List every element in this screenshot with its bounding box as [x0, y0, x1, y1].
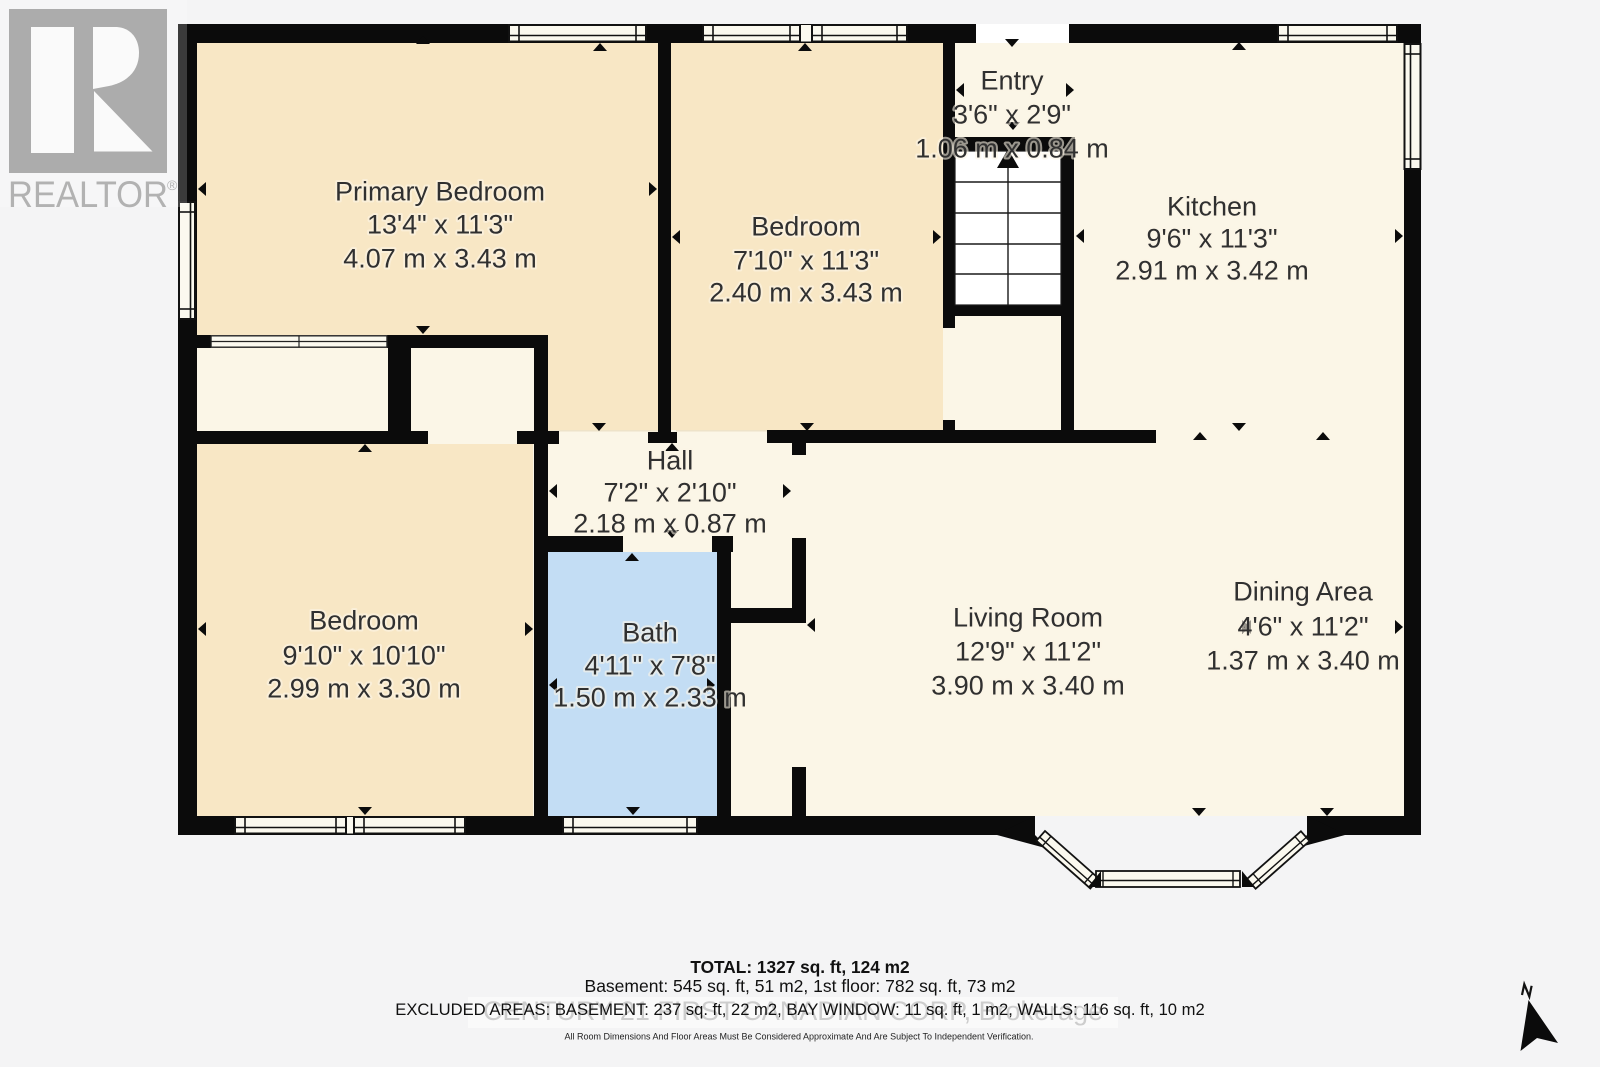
svg-text:7'10" x 11'3": 7'10" x 11'3" — [733, 245, 879, 275]
svg-text:Hall: Hall — [647, 445, 694, 475]
svg-text:Bath: Bath — [622, 618, 678, 648]
svg-text:13'4" x 11'3": 13'4" x 11'3" — [367, 209, 513, 239]
svg-text:4'11" x 7'8": 4'11" x 7'8" — [584, 651, 715, 681]
svg-text:Basement: 545 sq. ft, 51 m2, 1: Basement: 545 sq. ft, 51 m2, 1st floor: … — [585, 976, 1016, 996]
svg-text:Living Room: Living Room — [953, 603, 1103, 633]
svg-text:4'6" x 11'2": 4'6" x 11'2" — [1237, 612, 1368, 642]
svg-text:Dining Area: Dining Area — [1233, 577, 1374, 607]
svg-text:9'6" x 11'3": 9'6" x 11'3" — [1146, 223, 1277, 253]
svg-text:2.91 m x 3.42 m: 2.91 m x 3.42 m — [1115, 255, 1309, 285]
svg-text:®: ® — [167, 177, 178, 193]
svg-text:1.37 m x 3.40 m: 1.37 m x 3.40 m — [1206, 646, 1400, 676]
svg-text:Primary Bedroom: Primary Bedroom — [335, 176, 545, 206]
svg-text:TOTAL: 1327 sq. ft, 124 m2: TOTAL: 1327 sq. ft, 124 m2 — [690, 957, 909, 977]
svg-text:REALTOR: REALTOR — [8, 174, 168, 215]
svg-text:4.07 m x 3.43 m: 4.07 m x 3.43 m — [343, 243, 537, 273]
svg-text:Bedroom: Bedroom — [309, 606, 419, 636]
svg-text:All Room Dimensions And Floor: All Room Dimensions And Floor Areas Must… — [564, 1031, 1033, 1041]
svg-text:9'10" x 10'10": 9'10" x 10'10" — [282, 641, 445, 671]
svg-text:3.90 m x 3.40 m: 3.90 m x 3.40 m — [931, 671, 1125, 701]
svg-text:1.50 m x 2.33 m: 1.50 m x 2.33 m — [553, 683, 747, 713]
svg-text:12'9" x 11'2": 12'9" x 11'2" — [955, 637, 1101, 667]
svg-text:Entry: Entry — [980, 66, 1044, 96]
svg-text:3'6" x 2'9": 3'6" x 2'9" — [953, 100, 1071, 130]
svg-text:2.40 m x 3.43 m: 2.40 m x 3.43 m — [709, 277, 903, 307]
svg-text:2.99 m x 3.30 m: 2.99 m x 3.30 m — [267, 674, 461, 704]
svg-text:EXCLUDED AREAS: BASEMENT: 237: EXCLUDED AREAS: BASEMENT: 237 sq. ft, 22… — [395, 1000, 1204, 1019]
svg-text:Bedroom: Bedroom — [751, 211, 861, 241]
svg-text:7'2" x 2'10": 7'2" x 2'10" — [603, 477, 736, 507]
svg-text:1.06 m x 0.84 m: 1.06 m x 0.84 m — [915, 133, 1109, 163]
svg-text:2.18 m x 0.87 m: 2.18 m x 0.87 m — [573, 509, 767, 539]
svg-text:Kitchen: Kitchen — [1167, 191, 1257, 221]
